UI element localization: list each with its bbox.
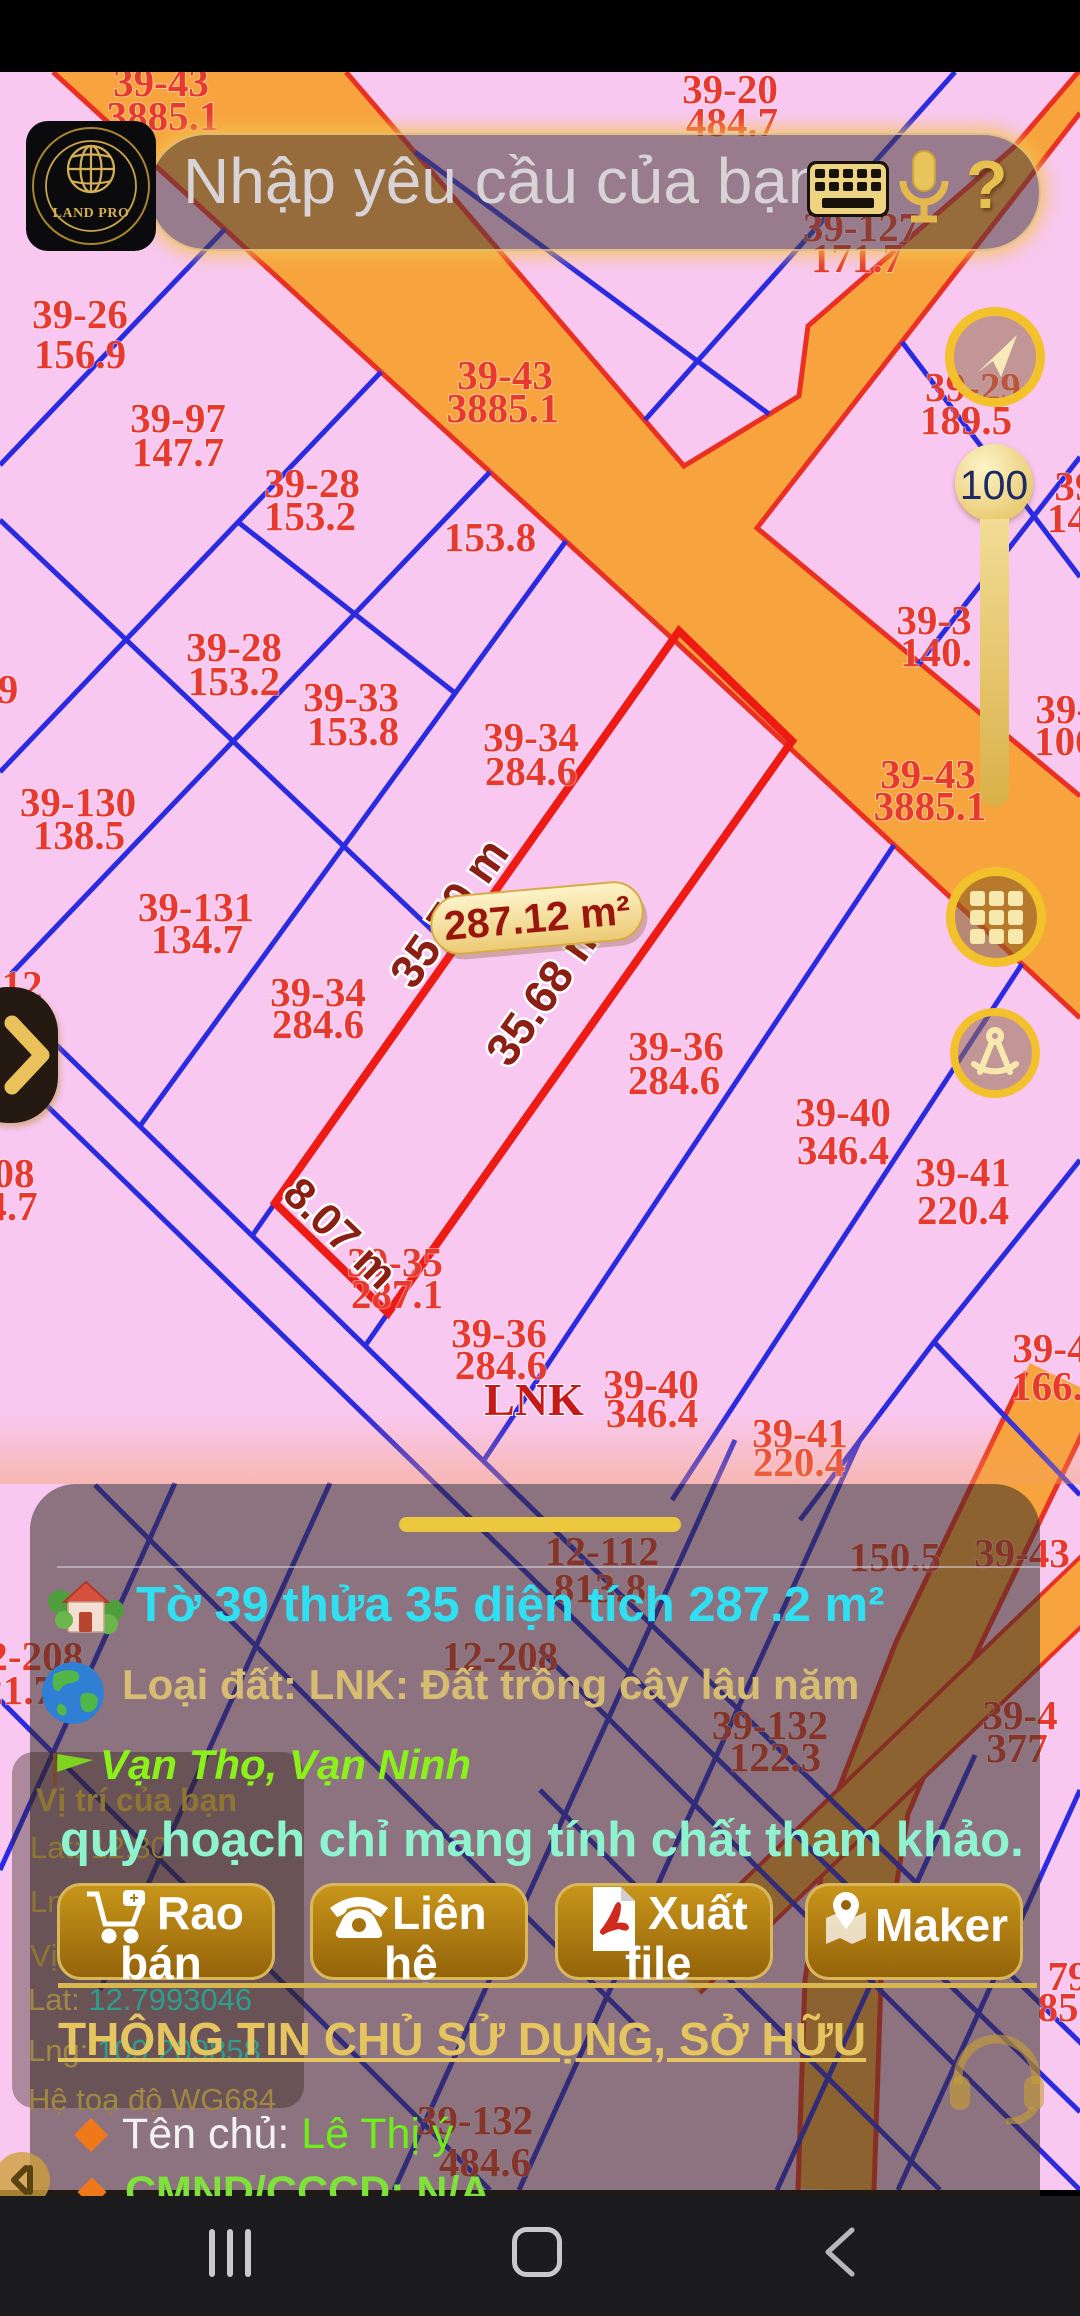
svg-text:153.8: 153.8: [307, 708, 399, 754]
svg-text:153.8: 153.8: [444, 514, 536, 560]
svg-text:LAND PRO: LAND PRO: [53, 206, 130, 221]
svg-text:+: +: [129, 1890, 138, 1907]
svg-text:284.6: 284.6: [272, 1001, 364, 1047]
svg-text:147.7: 147.7: [132, 429, 224, 475]
svg-text:134.7: 134.7: [151, 916, 243, 962]
svg-text:284.6: 284.6: [628, 1057, 720, 1103]
svg-text:153.2: 153.2: [188, 658, 280, 704]
svg-text:153.2: 153.2: [264, 493, 356, 539]
svg-text:138.5: 138.5: [33, 812, 125, 858]
svg-text:3885.1: 3885.1: [874, 783, 987, 829]
svg-text:3885.1: 3885.1: [447, 385, 560, 431]
svg-text:156.9: 156.9: [34, 331, 126, 377]
svg-text:140.: 140.: [900, 629, 972, 675]
svg-text:140.1: 140.1: [1047, 495, 1080, 541]
svg-text:284.6: 284.6: [485, 748, 577, 794]
svg-text:346.4: 346.4: [797, 1127, 889, 1173]
svg-text:9: 9: [0, 666, 18, 712]
svg-text:106.: 106.: [1034, 718, 1080, 764]
svg-text:166.: 166.: [1011, 1363, 1080, 1409]
svg-text:220.4: 220.4: [917, 1187, 1009, 1233]
svg-text:4.7: 4.7: [0, 1183, 38, 1229]
